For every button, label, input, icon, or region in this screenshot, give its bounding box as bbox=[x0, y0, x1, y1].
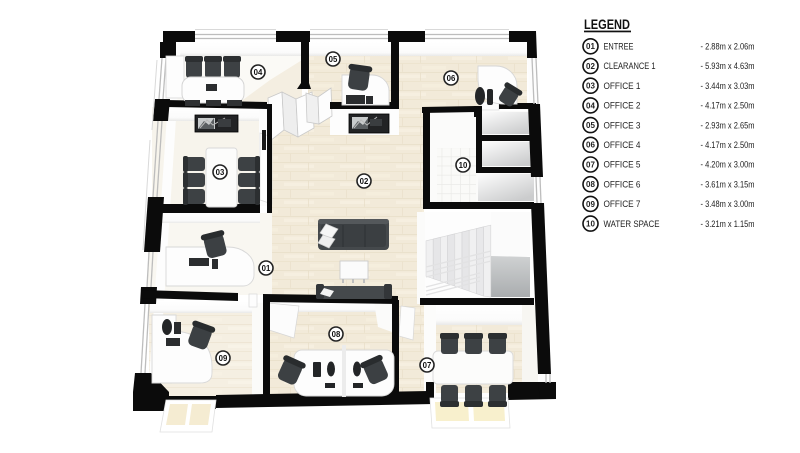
svg-text:03: 03 bbox=[586, 82, 595, 91]
svg-text:OFFICE 4: OFFICE 4 bbox=[604, 140, 641, 150]
svg-text:02: 02 bbox=[360, 177, 369, 186]
svg-text:OFFICE 2: OFFICE 2 bbox=[604, 101, 641, 111]
svg-text:OFFICE 1: OFFICE 1 bbox=[604, 81, 641, 91]
svg-text:07: 07 bbox=[423, 361, 432, 370]
svg-text:05: 05 bbox=[329, 55, 338, 64]
svg-text:- 2.93m x 2.65m: - 2.93m x 2.65m bbox=[701, 120, 755, 130]
svg-text:- 3.21m x 1.15m: - 3.21m x 1.15m bbox=[701, 219, 755, 229]
svg-text:OFFICE 6: OFFICE 6 bbox=[604, 179, 641, 189]
svg-text:07: 07 bbox=[586, 160, 595, 169]
svg-text:08: 08 bbox=[586, 180, 595, 189]
svg-text:04: 04 bbox=[254, 68, 263, 77]
svg-text:09: 09 bbox=[219, 354, 228, 363]
svg-text:ENTREE: ENTREE bbox=[604, 42, 634, 52]
svg-text:09: 09 bbox=[586, 200, 595, 209]
svg-text:OFFICE 7: OFFICE 7 bbox=[604, 199, 641, 209]
svg-text:08: 08 bbox=[332, 330, 341, 339]
svg-text:06: 06 bbox=[586, 141, 595, 150]
svg-text:06: 06 bbox=[447, 74, 456, 83]
svg-text:05: 05 bbox=[586, 121, 595, 130]
svg-text:10: 10 bbox=[459, 161, 468, 170]
svg-text:OFFICE 3: OFFICE 3 bbox=[604, 120, 641, 130]
svg-text:CLEARANCE 1: CLEARANCE 1 bbox=[604, 61, 656, 71]
svg-text:OFFICE 5: OFFICE 5 bbox=[604, 160, 641, 170]
svg-text:- 2.88m x 2.06m: - 2.88m x 2.06m bbox=[701, 42, 755, 52]
svg-text:02: 02 bbox=[586, 62, 595, 71]
svg-text:LEGEND: LEGEND bbox=[584, 17, 630, 32]
svg-text:- 5.93m x 4.63m: - 5.93m x 4.63m bbox=[701, 61, 755, 71]
svg-text:- 3.61m x 3.15m: - 3.61m x 3.15m bbox=[701, 179, 755, 189]
svg-text:- 3.44m x 3.03m: - 3.44m x 3.03m bbox=[701, 81, 755, 91]
svg-text:10: 10 bbox=[586, 220, 595, 229]
svg-text:04: 04 bbox=[586, 101, 595, 110]
svg-text:01: 01 bbox=[586, 42, 595, 51]
svg-text:- 4.17m x 2.50m: - 4.17m x 2.50m bbox=[701, 101, 755, 111]
svg-text:01: 01 bbox=[262, 264, 271, 273]
svg-text:WATER SPACE: WATER SPACE bbox=[604, 219, 660, 229]
svg-text:03: 03 bbox=[216, 168, 225, 177]
svg-text:- 4.20m x 3.00m: - 4.20m x 3.00m bbox=[701, 160, 755, 170]
svg-text:- 3.48m x 3.00m: - 3.48m x 3.00m bbox=[701, 199, 755, 209]
svg-text:- 4.17m x 2.50m: - 4.17m x 2.50m bbox=[701, 140, 755, 150]
